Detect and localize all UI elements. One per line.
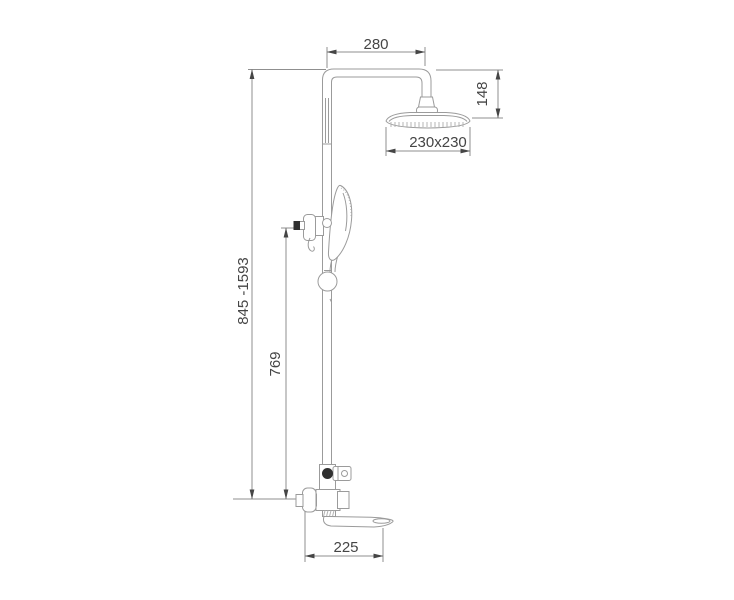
drawing-canvas: 280 148 230x230 845 -1593 769 225 — [0, 0, 734, 600]
ball-joint — [318, 271, 337, 303]
dim-column-height-label: 845 -1593 — [235, 257, 252, 325]
diverter-knob — [322, 468, 333, 479]
slider-bracket — [294, 215, 332, 252]
bath-spout — [323, 517, 393, 528]
mixer-body — [316, 490, 340, 511]
bracket-disc — [304, 215, 316, 241]
dimension-arm-width: 280 — [327, 36, 425, 68]
dimension-head-size: 230x230 — [386, 127, 470, 156]
mixer-valve — [296, 465, 351, 517]
dim-arm-width-label: 280 — [363, 36, 388, 53]
shower-arm — [323, 69, 432, 97]
dim-head-size-label: 230x230 — [409, 134, 467, 151]
bracket-screw — [323, 219, 332, 228]
head-connector-cone — [419, 97, 435, 107]
lever-handle-cap — [296, 495, 303, 507]
spout-opening — [373, 519, 390, 524]
dim-head-offset-label: 148 — [474, 81, 491, 106]
mixer-cap-right — [338, 492, 350, 509]
overhead-shower — [386, 97, 470, 128]
dim-rail-height-label: 769 — [267, 351, 284, 376]
ball-joint-sphere — [318, 272, 337, 291]
knob-stem — [300, 222, 305, 230]
dimension-column-height: 845 -1593 — [233, 70, 326, 500]
lever-handle-disc — [303, 488, 317, 512]
technical-drawing: 280 148 230x230 845 -1593 769 225 — [0, 0, 734, 600]
dimension-head-offset: 148 — [436, 70, 503, 118]
dimension-rail-height: 769 — [267, 228, 295, 499]
dim-spout-length-label: 225 — [333, 539, 358, 556]
lock-knob — [294, 221, 301, 230]
